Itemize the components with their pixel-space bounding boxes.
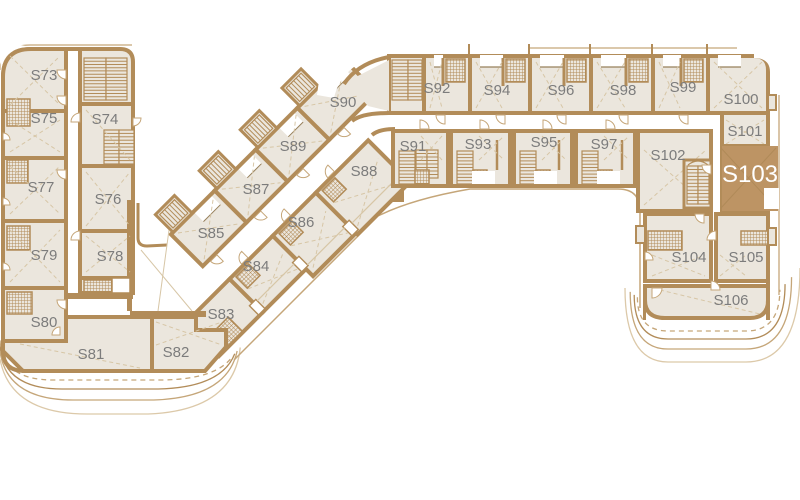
svg-text:S93: S93 — [465, 136, 492, 153]
svg-text:S92: S92 — [424, 80, 451, 97]
svg-text:S88: S88 — [351, 163, 378, 180]
svg-text:S82: S82 — [163, 344, 190, 361]
svg-text:S106: S106 — [713, 292, 748, 309]
svg-text:S96: S96 — [548, 82, 575, 99]
svg-text:S98: S98 — [610, 82, 637, 99]
svg-text:S97: S97 — [591, 136, 618, 153]
svg-text:S89: S89 — [280, 138, 307, 155]
svg-text:S78: S78 — [97, 248, 124, 265]
svg-text:S94: S94 — [484, 82, 511, 99]
svg-text:S90: S90 — [330, 94, 357, 111]
svg-text:S103: S103 — [722, 161, 778, 188]
svg-text:S84: S84 — [243, 258, 270, 275]
svg-text:S81: S81 — [78, 346, 105, 363]
svg-text:S102: S102 — [650, 147, 685, 164]
svg-text:S85: S85 — [198, 225, 225, 242]
svg-text:S99: S99 — [670, 79, 697, 96]
svg-text:S87: S87 — [243, 181, 270, 198]
svg-text:S95: S95 — [531, 134, 558, 151]
svg-text:S86: S86 — [288, 214, 315, 231]
svg-text:S104: S104 — [671, 249, 706, 266]
svg-text:S83: S83 — [208, 306, 235, 323]
svg-text:S105: S105 — [728, 249, 763, 266]
svg-text:S80: S80 — [31, 314, 58, 331]
svg-text:S100: S100 — [723, 91, 758, 108]
svg-text:S77: S77 — [28, 179, 55, 196]
svg-text:S79: S79 — [31, 247, 58, 264]
svg-text:S73: S73 — [31, 67, 58, 84]
svg-text:S101: S101 — [727, 123, 762, 140]
svg-text:S91: S91 — [400, 138, 427, 155]
svg-text:S76: S76 — [95, 191, 122, 208]
svg-text:S74: S74 — [92, 111, 119, 128]
svg-text:S75: S75 — [31, 110, 58, 127]
